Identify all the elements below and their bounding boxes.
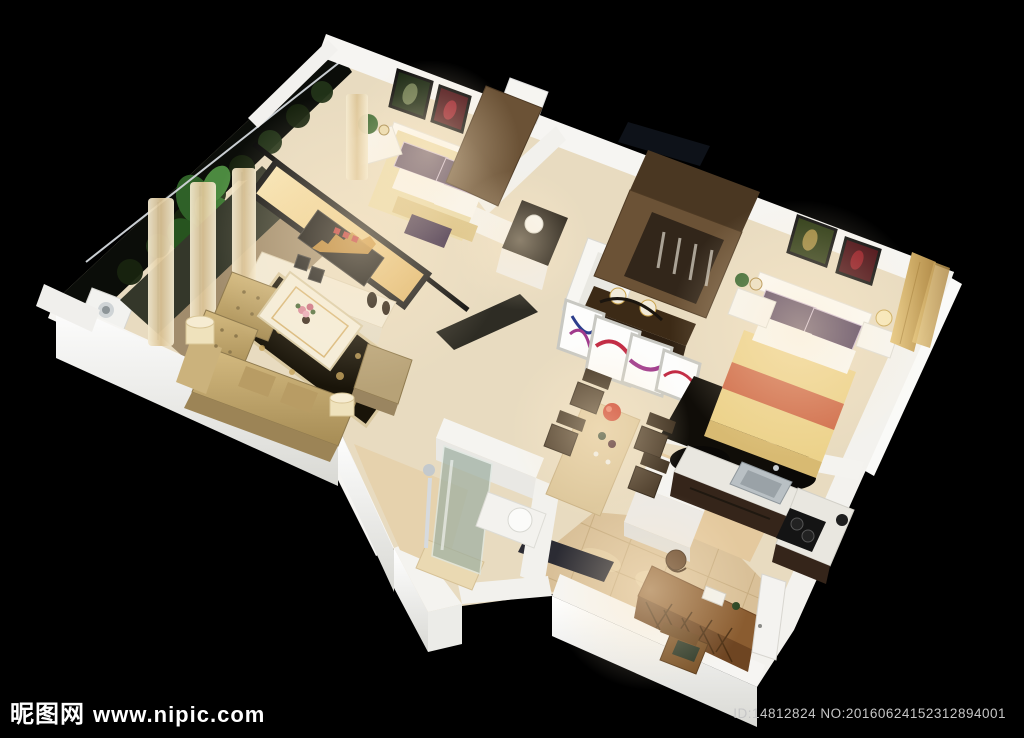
- watermark-id: ID:14812824 NO:20160624152312894001: [733, 706, 1006, 721]
- master-lamp-left: [750, 278, 762, 290]
- render-canvas: 昵图网www.nipic.com ID:14812824 NO:20160624…: [0, 0, 1024, 738]
- floor-lamp-2: [330, 393, 354, 416]
- apartment-render: [0, 0, 1024, 738]
- watermark-site-name: 昵图网: [10, 701, 85, 728]
- watermark-site: 昵图网www.nipic.com: [10, 694, 265, 729]
- cooktop-burner-2: [802, 530, 814, 542]
- glass-1: [594, 452, 599, 457]
- glass-2: [606, 460, 611, 465]
- watermark-site-url: www.nipic.com: [93, 702, 265, 727]
- wine-bottle-1: [598, 432, 606, 440]
- wall-bathroom-face-2: [428, 604, 462, 652]
- bedroom2-lamp: [379, 125, 389, 135]
- cooktop-burner-1: [791, 518, 803, 530]
- desk-bottle: [732, 602, 740, 610]
- door-handle: [758, 624, 762, 628]
- floor-lamp-1: [186, 316, 214, 344]
- bedroom2-curtain: [346, 94, 368, 180]
- decor-vase-2: [382, 301, 390, 315]
- shower-head: [423, 464, 435, 476]
- master-plant: [735, 273, 749, 287]
- kitchen-faucet: [773, 465, 779, 471]
- console-lamp-1: [610, 288, 626, 304]
- round-basin: [508, 508, 532, 532]
- red-bowl: [603, 403, 621, 421]
- wine-bottle-2: [608, 440, 616, 448]
- master-lamp-right: [876, 310, 892, 326]
- decor-vase-1: [367, 292, 377, 308]
- vanity-basin: [525, 215, 543, 233]
- kettle: [836, 514, 848, 526]
